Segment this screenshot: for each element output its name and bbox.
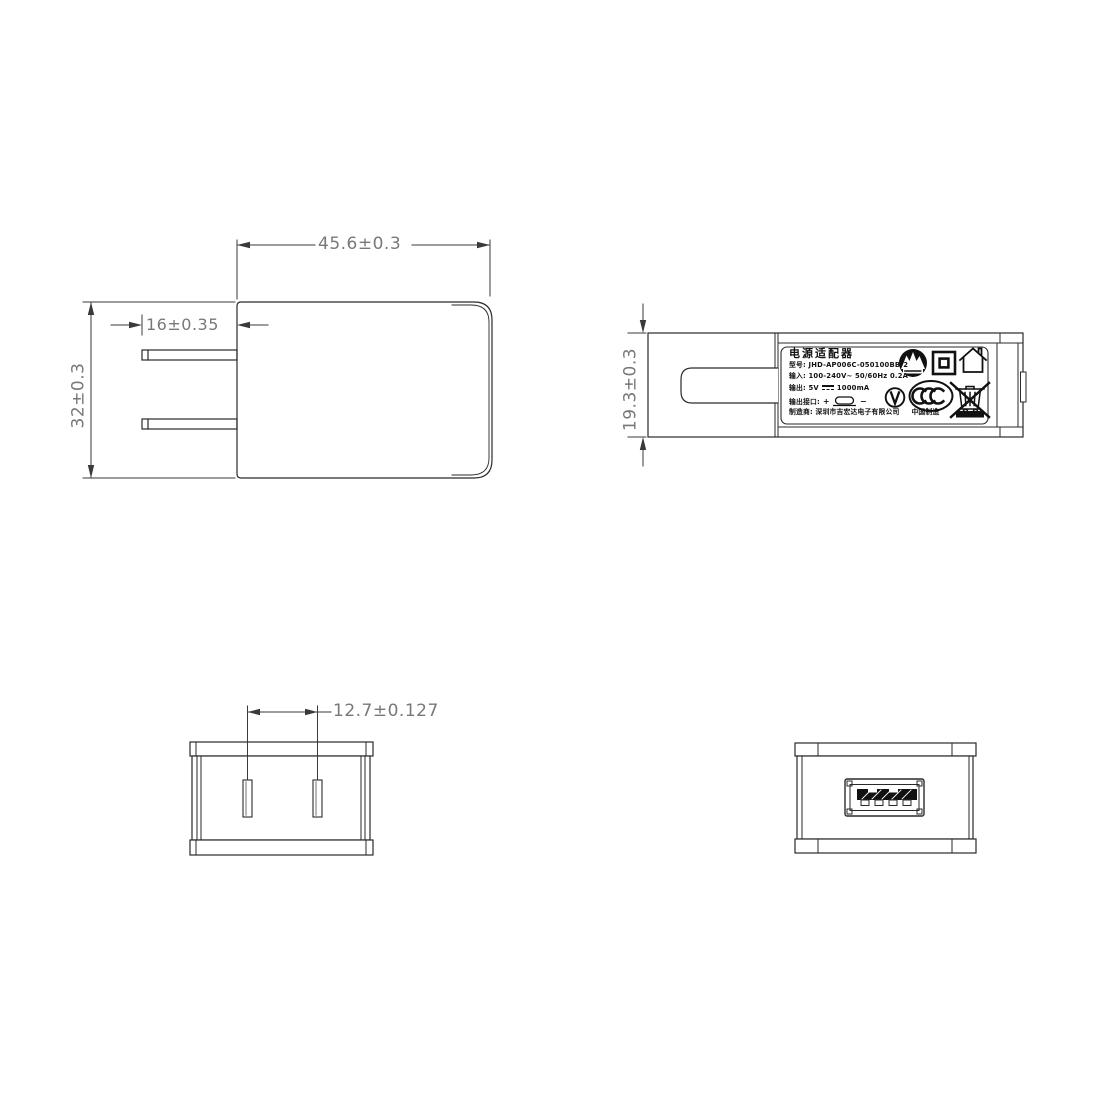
technical-drawing-linework [0,0,1100,1100]
dim-pin-pitch: 12.7±0.127 [333,703,439,720]
drawing-canvas: 45.6±0.3 16±0.35 32±0.3 19.3±0.3 12.7±0.… [0,0,1100,1100]
dc-symbol-icon [822,385,834,390]
front-body-inner-line [452,305,489,475]
dim-front-width: 45.6±0.3 [318,236,401,253]
label-port-minus: − [860,398,867,406]
dim-side-thickness: 19.3±0.3 [623,315,640,465]
side-usb-notch [1021,372,1027,402]
top-view-pin-right [313,780,322,817]
bottom-view-upper-band [795,743,976,756]
usb-connector-icon [833,396,857,408]
top-view-upper-band [190,742,373,756]
bottom-view [795,743,976,853]
label-output: 输出: 5V 1000mA [789,385,869,392]
label-port-plus: + [823,398,830,406]
dim-prong-length: 16±0.35 [146,317,219,333]
top-view-body [192,756,370,840]
label-maker: 制造商: 深圳市吉宏达电子有限公司 中国制造 [789,409,939,416]
label-port-prefix: 输出接口: [789,399,820,406]
black-bar-mark [956,411,984,418]
label-made-in: 中国制造 [911,409,939,416]
top-view-pin-left [243,780,252,817]
dim-front-height: 32±0.3 [71,330,88,462]
top-view [190,742,373,855]
front-body-outline [237,302,492,478]
usb-port [845,779,924,816]
label-port: 输出接口: + − [789,396,867,408]
front-prong-lower [142,419,237,429]
label-output-suffix: 1000mA [837,385,869,392]
top-view-lower-band [190,840,373,855]
bottom-view-lower-band [795,839,976,853]
label-input: 输入: 100-240V~ 50/60Hz 0.2A [789,373,908,380]
label-output-prefix: 输出: 5V [789,385,819,392]
usb-tongue [857,789,917,800]
label-maker-text: 制造商: 深圳市吉宏达电子有限公司 [789,409,899,416]
label-title: 电源适配器 [789,348,854,359]
label-model: 型号: JHD-AP006C-050100BB-2 [789,362,908,369]
front-prong-upper [142,350,237,360]
side-prong-edge [681,368,778,403]
